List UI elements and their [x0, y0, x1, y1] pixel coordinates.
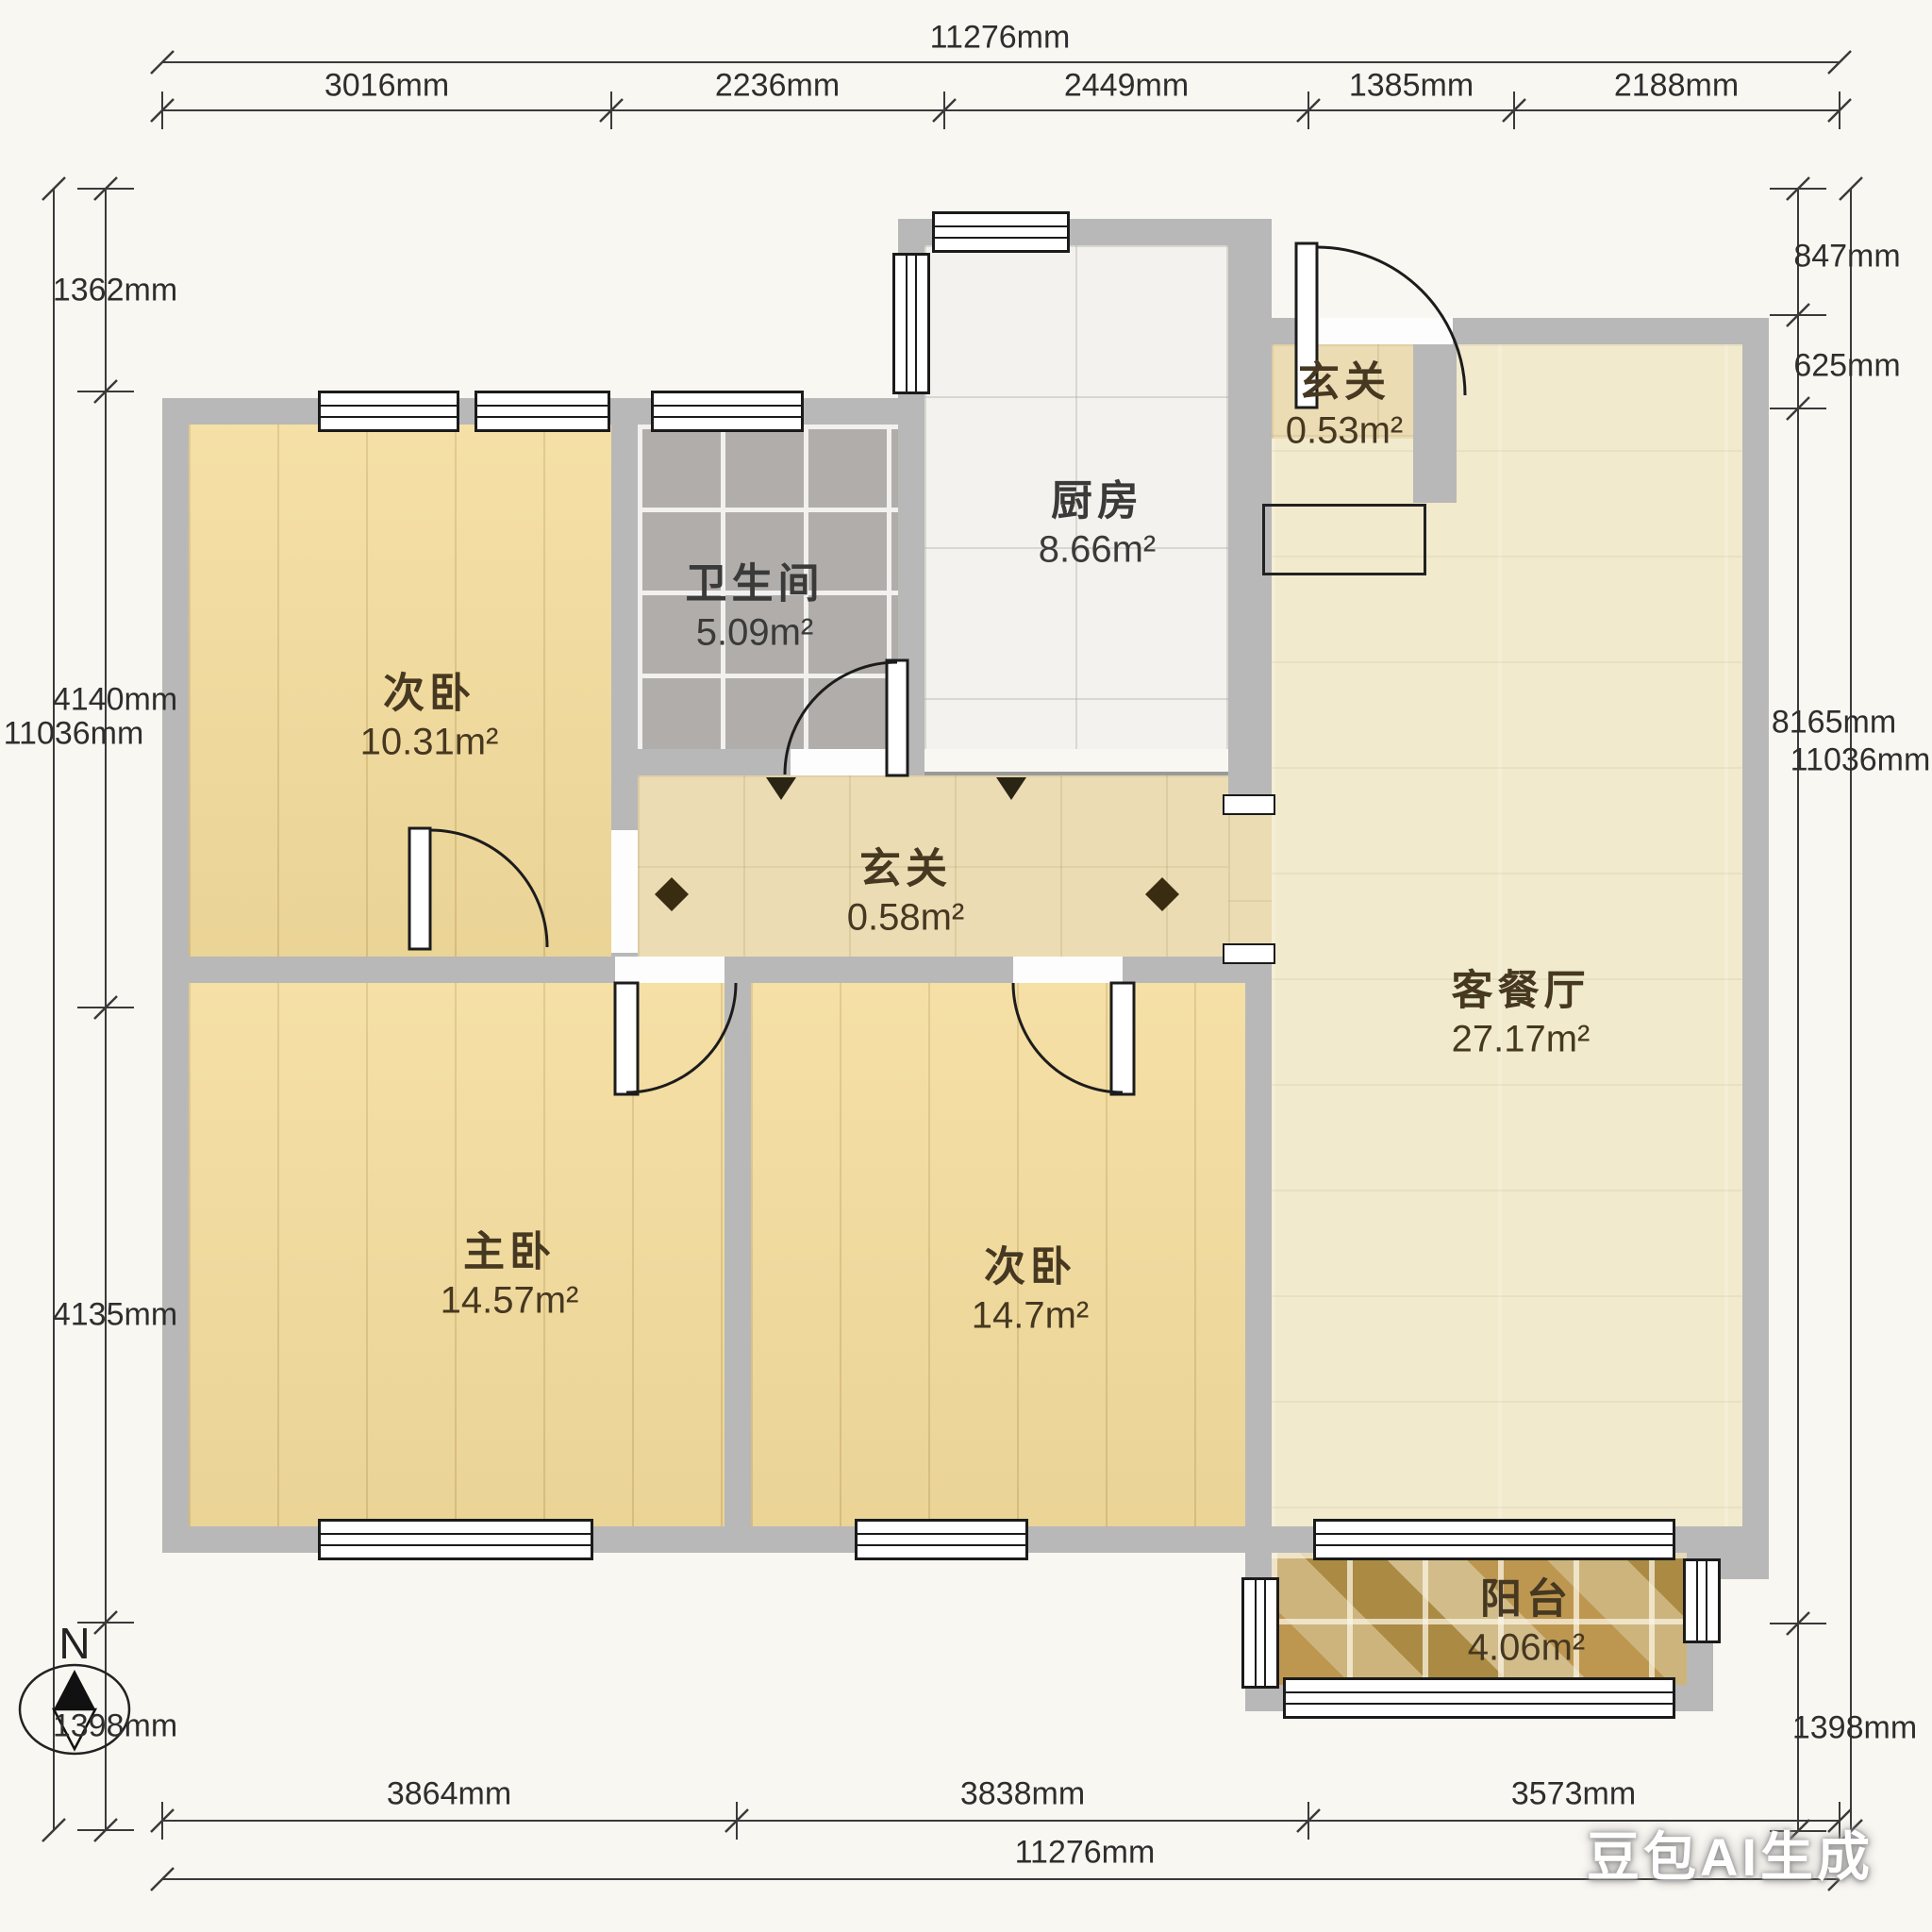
dim-bottom-total: 11276mm	[1015, 1835, 1156, 1872]
master-door-arc	[626, 983, 736, 1092]
dim-top-segment-1: 2236mm	[715, 68, 840, 105]
dim-top-segment-2: 2449mm	[1064, 68, 1189, 105]
room-label-bedroom-top-left: 次卧 10.31m²	[360, 670, 499, 765]
room-label-foyer-entry: 玄关 0.53m²	[1286, 358, 1404, 454]
bedroomtl-door-leaf	[409, 828, 430, 949]
room-label-master-bedroom: 主卧 14.57m²	[441, 1228, 579, 1324]
room-label-hallway: 玄关 0.58m²	[847, 845, 965, 941]
floor-plan-canvas: 次卧 10.31m² 卫生间 5.09m² 厨房 8.66m² 玄关 0.53m…	[0, 0, 1932, 1932]
dim-left-segment-0: 1362mm	[53, 273, 177, 309]
watermark-text: 豆包AI生成	[1587, 1815, 1874, 1891]
north-label: N	[58, 1618, 90, 1669]
dim-bottom-segment-0: 3864mm	[387, 1776, 511, 1813]
dim-right-segment-0: 847mm	[1793, 239, 1900, 275]
dim-right-segment-3: 1398mm	[1792, 1710, 1917, 1747]
dim-left-segment-1: 4140mm	[53, 682, 177, 719]
dim-top-total: 11276mm	[930, 20, 1071, 57]
room-label-bedroom-bottom: 次卧 14.7m²	[972, 1243, 1090, 1339]
room-label-kitchen: 厨房 8.66m²	[1039, 477, 1157, 573]
dim-top-segment-3: 1385mm	[1349, 68, 1474, 105]
diamond-ornament-icon	[655, 877, 689, 911]
room-label-balcony: 阳台 4.06m²	[1468, 1575, 1586, 1671]
room-label-living-dining: 客餐厅 27.17m²	[1452, 967, 1591, 1062]
dim-left-total: 11036mm	[4, 716, 144, 753]
triangle-ornament-icon	[996, 777, 1026, 800]
dim-right-total: 11036mm	[1790, 742, 1931, 779]
diamond-ornament-icon	[1145, 877, 1179, 911]
bedroomtl-door-arc	[430, 830, 547, 947]
dim-right-segment-1: 625mm	[1793, 348, 1900, 385]
dim-left-segment-3: 1398mm	[53, 1708, 177, 1745]
bedroom2-door-leaf	[1111, 983, 1134, 1094]
dim-right-segment-2: 8165mm	[1772, 705, 1896, 741]
bedroom2-door-arc	[1013, 983, 1123, 1092]
bathroom-door-leaf	[887, 660, 908, 775]
dim-left-segment-2: 4135mm	[53, 1297, 177, 1334]
bathroom-door-arc	[785, 662, 897, 774]
dim-top-segment-4: 2188mm	[1614, 68, 1739, 105]
room-label-bathroom: 卫生间 5.09m²	[686, 560, 824, 656]
plan-linework	[0, 0, 1932, 1932]
dim-bottom-segment-1: 3838mm	[960, 1776, 1085, 1813]
triangle-ornament-icon	[766, 777, 796, 800]
dim-bottom-segment-2: 3573mm	[1511, 1776, 1636, 1813]
dim-top-segment-0: 3016mm	[325, 68, 449, 105]
master-door-leaf	[615, 983, 638, 1094]
